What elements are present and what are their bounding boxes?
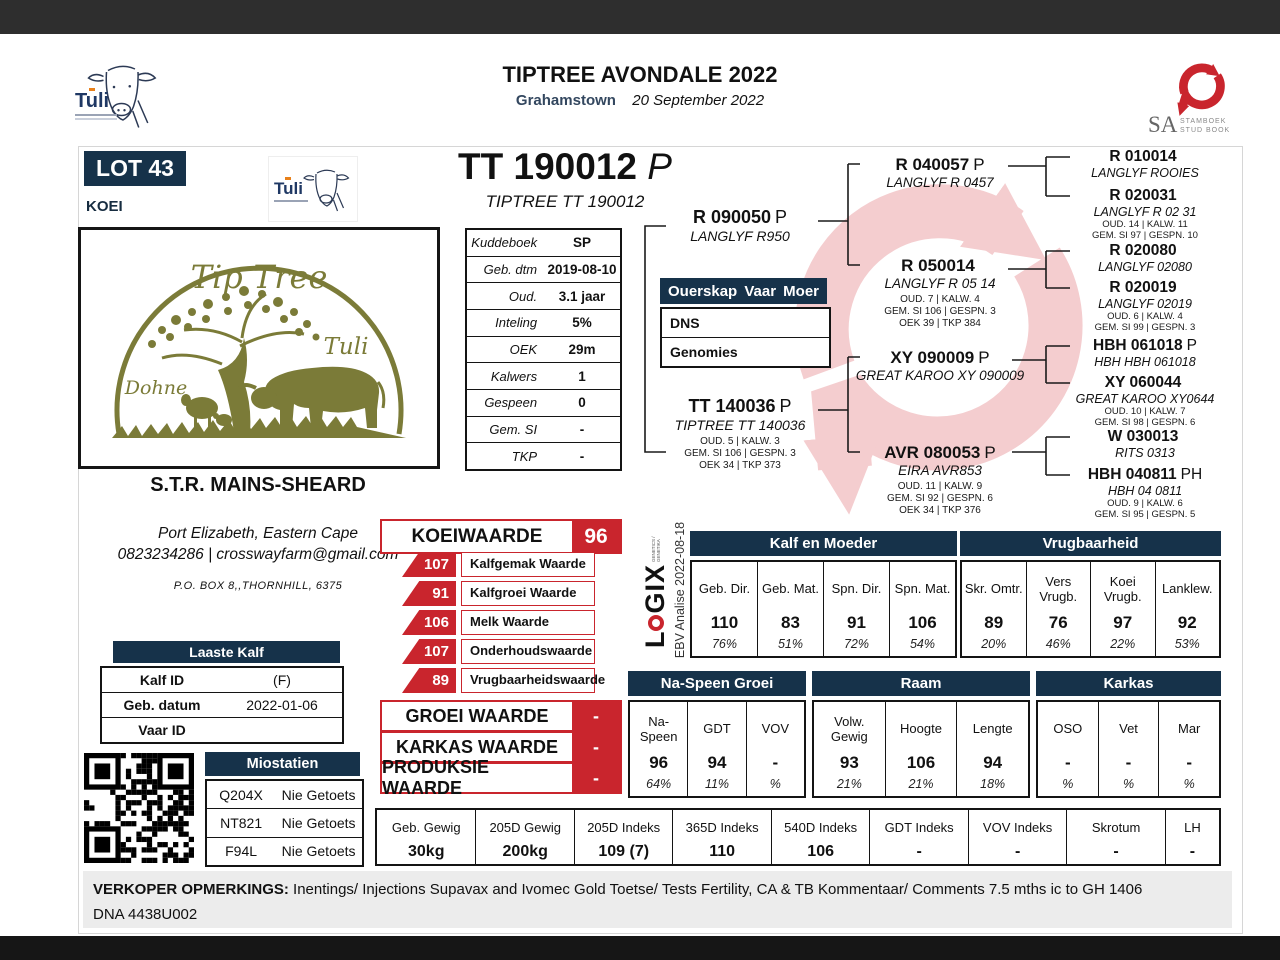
index-col: Skrotum-	[1066, 810, 1164, 865]
ouerskap-row-genomies: Genomies	[662, 337, 829, 366]
ebv-cell: Vers Vrugb.7646%	[1026, 562, 1091, 656]
ebv-cell: Skr. Omtr.8920%	[962, 562, 1026, 656]
na-speen-groei-table: Na-Speen9664% GDT9411% VOV-%	[628, 700, 806, 798]
ebv-cell: Geb. Mat.8351%	[757, 562, 823, 656]
ebv-cell: Lengte9418%	[956, 702, 1028, 796]
info-row: Geb. dtm2019-08-10	[467, 256, 620, 283]
miostatien-header: Miostatien	[205, 752, 360, 776]
karkas-table: OSO-% Vet-% Mar-%	[1036, 700, 1221, 798]
laaste-kalf-table: Kalf ID (F) Geb. datum 2022-01-06 Vaar I…	[100, 666, 344, 744]
farm-breed-text: Tuli	[324, 334, 369, 360]
stamboek-watermark	[822, 211, 1056, 468]
tuli-logo-small: Tuli	[268, 156, 358, 222]
ebv-cell: Spn. Dir.9172%	[823, 562, 889, 656]
pedigree-gen4-node: HBH 061018P HBH HBH 061018	[1068, 337, 1222, 369]
na-speen-groei-header: Na-Speen Groei	[628, 671, 806, 696]
pedigree-sire: R 090050P LANGLYF R950	[650, 207, 830, 244]
pedigree-gen3-node: XY 090009P GREAT KAROO XY 090009	[842, 348, 1038, 383]
info-row: Gem. SI-	[467, 416, 620, 443]
pedigree-gen4-node: R 020031 LANGLYF R 02 31 OUD. 14 | KALW.…	[1068, 187, 1222, 241]
animal-title-block: TT 190012 P TIPTREE TT 190012	[400, 146, 730, 212]
tip-tree-farm-logo: Tip Tree Tuli Dohne	[94, 242, 424, 454]
remarks-dna: DNA 4438U002	[93, 902, 1222, 927]
index-col: 540D Indeks106	[771, 810, 869, 865]
tuli-tagline-line	[274, 200, 308, 202]
ebv-cell: VOV-%	[746, 702, 804, 796]
koeiwaarde-bar: KOEIWAARDE 96	[380, 519, 622, 554]
ebv-analise-date: EBV Analise 2022-08-18	[673, 520, 687, 660]
koeiwaarde-value: 96	[572, 521, 620, 552]
ebv-cell: GDT9411%	[687, 702, 745, 796]
pedigree-gen3-node: R 050014 LANGLYF R 05 14 OUD. 7 | KALW. …	[842, 256, 1038, 330]
produksie-waarde-bar: PRODUKSIE WAARDE -	[380, 762, 622, 794]
vrugbaarheid-table: Skr. Omtr.8920% Vers Vrugb.7646% Koei Vr…	[960, 560, 1221, 658]
info-row: TKP-	[467, 442, 620, 469]
ebv-cell: Geb. Dir.11076%	[692, 562, 757, 656]
ebv-cell: Koei Vrugb.9722%	[1090, 562, 1155, 656]
growth-index-table: Geb. Gewig30kg 205D Gewig200kg 205D Inde…	[375, 808, 1221, 866]
miostatien-row: NT821 Nie Getoets	[207, 808, 362, 836]
laaste-kalf-row: Kalf ID (F)	[102, 668, 342, 692]
pedigree-gen4-node: R 020080 LANGLYF 02080	[1068, 242, 1222, 274]
farm-dohne-text: Dohne	[124, 377, 187, 399]
lot-number-badge: LOT 43	[84, 151, 186, 186]
raam-header: Raam	[812, 671, 1030, 696]
pedigree-gen3-node: AVR 080053P EIRA AVR853 OUD. 11 | KALW. …	[842, 443, 1038, 517]
ebv-cell: Lanklew.9253%	[1155, 562, 1220, 656]
pedigree-dam: TT 140036P TIPTREE TT 140036 OUD. 5 | KA…	[640, 396, 840, 472]
ebv-cell: Vet-%	[1098, 702, 1159, 796]
ouerskap-table: DNS Genomies	[660, 307, 831, 368]
animal-id-suffix: P	[647, 146, 672, 187]
pedigree-gen4-node: R 020019 LANGLYF 02019 OUD. 6 | KALW. 4 …	[1068, 279, 1222, 333]
remarks-label: VERKOPER OPMERKINGS:	[93, 881, 289, 898]
logix-o-icon	[648, 615, 664, 631]
miostatien-row: Q204X Nie Getoets	[207, 781, 362, 808]
groei-waarde-bar: GROEI WAARDE -	[380, 700, 622, 732]
laaste-kalf-row: Vaar ID	[102, 717, 342, 742]
index-col: 205D Gewig200kg	[475, 810, 573, 865]
laaste-kalf-row: Geb. datum 2022-01-06	[102, 692, 342, 717]
tuli-orange-accent	[285, 177, 291, 180]
kalf-en-moeder-table: Geb. Dir.11076% Geb. Mat.8351% Spn. Dir.…	[690, 560, 957, 658]
ebv-cell: Hoogte10621%	[885, 702, 957, 796]
animal-info-table: KuddeboekSP Geb. dtm2019-08-10 Oud.3.1 j…	[465, 228, 622, 471]
sex-label: KOEI	[86, 198, 123, 215]
ebv-cell: OSO-%	[1038, 702, 1098, 796]
index-col: 365D Indeks110	[672, 810, 770, 865]
pedigree-gen4-node: R 010014 LANGLYF ROOIES	[1068, 148, 1222, 180]
vrugbaarheid-header: Vrugbaarheid	[960, 531, 1221, 556]
index-col: LH-	[1165, 810, 1219, 865]
info-row: Kalwers1	[467, 362, 620, 389]
info-row: Inteling5%	[467, 309, 620, 336]
pedigree-gen3-node: R 040057P LANGLYF R 0457	[842, 155, 1038, 190]
info-row: Oud.3.1 jaar	[467, 282, 620, 309]
ebv-cell: Volw. Gewig9321%	[814, 702, 885, 796]
melk-label: Melk Waarde	[461, 610, 595, 635]
tuli-wordmark: Tuli	[274, 179, 303, 199]
laaste-kalf-header: Laaste Kalf	[113, 641, 340, 663]
pedigree-gen4-node: XY 060044 GREAT KAROO XY0644 OUD. 10 | K…	[1068, 374, 1222, 428]
pedigree-gen4-node: HBH 040811PH HBH 04 0811 OUD. 9 | KALW. …	[1068, 466, 1222, 520]
info-row: OEK29m	[467, 336, 620, 363]
seller-remarks: VERKOPER OPMERKINGS: Inentings/ Injectio…	[83, 871, 1232, 928]
kalf-en-moeder-header: Kalf en Moeder	[690, 531, 957, 556]
owner-address: P.O. BOX 8,,THORNHILL, 6375	[78, 580, 438, 592]
animal-photo: Tip Tree Tuli Dohne	[78, 227, 440, 469]
ebv-cell: Mar-%	[1158, 702, 1219, 796]
bull-silhouette	[240, 367, 384, 428]
index-col: VOV Indeks-	[968, 810, 1066, 865]
ebv-cell: Na-Speen9664%	[630, 702, 687, 796]
logix-logo: L GIX GENETICS / GENETIKA EBV Analise 20…	[640, 520, 694, 660]
pedigree-gen4-node: W 030013 RITS 0313	[1068, 428, 1222, 460]
ouerskap-row-dns: DNS	[662, 309, 829, 337]
kalfgroei-label: Kalfgroei Waarde	[461, 581, 595, 606]
info-row: Gespeen0	[467, 389, 620, 416]
onderhouds-label: Onderhoudswaarde	[461, 639, 595, 664]
vrugbaarheids-label: Vrugbaarheidswaarde	[461, 668, 595, 693]
cow-head-icon	[295, 160, 355, 216]
miostatien-row: F94L Nie Getoets	[207, 837, 362, 865]
karkas-header: Karkas	[1036, 671, 1221, 696]
raam-table: Volw. Gewig9321% Hoogte10621% Lengte9418…	[812, 700, 1030, 798]
qr-code	[84, 753, 194, 863]
farm-name-text: Tip Tree	[191, 258, 328, 296]
animal-id: TT 190012	[458, 146, 637, 187]
catalog-page: TIPTREE AVONDALE 2022 Grahamstown 20 Sep…	[0, 0, 1280, 960]
index-col: GDT Indeks-	[869, 810, 967, 865]
sheep-silhouette	[181, 394, 232, 430]
ouerskap-header: Ouerskap Vaar Moer	[660, 278, 827, 304]
index-col: Geb. Gewig30kg	[377, 810, 475, 865]
remarks-text: Inentings/ Injections Supavax and Ivomec…	[293, 881, 1142, 898]
owner-name: S.T.R. MAINS-SHEARD	[78, 474, 438, 497]
miostatien-table: Q204X Nie Getoets NT821 Nie Getoets F94L…	[205, 779, 364, 867]
ebv-cell: Spn. Mat.10654%	[889, 562, 955, 656]
kalfgemak-label: Kalfgemak Waarde	[461, 552, 595, 577]
info-row: KuddeboekSP	[467, 230, 620, 256]
index-col: 205D Indeks109 (7)	[574, 810, 672, 865]
